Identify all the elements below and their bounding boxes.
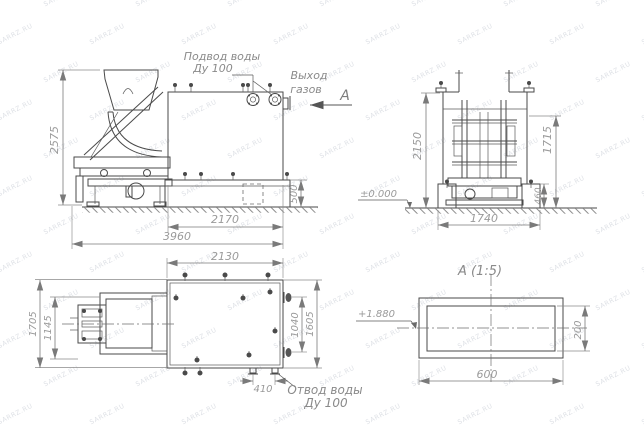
- dim-side-overall-height: 2150: [411, 132, 424, 160]
- ground-line: [82, 207, 318, 213]
- gas-outlet-nozzle: [283, 96, 290, 110]
- view-mark-letter: А: [339, 88, 350, 104]
- foundation-blocks: [438, 184, 540, 208]
- dim-front-overall-length: 3960: [163, 230, 191, 243]
- section-view: А (1:5) 600 200 +1.880: [356, 264, 590, 385]
- gas-outlet-label-1: Выход: [290, 69, 327, 82]
- water-drain-label: Отвод воды: [287, 383, 362, 397]
- front-view: 2575 500 2170 3960 Подвод воды Ду 100: [48, 50, 352, 249]
- plan-view: 2130 1705 1145 1040 1605: [28, 250, 363, 410]
- gas-outlet-label-2: газов: [290, 83, 322, 96]
- drawing-sheet: SARRZ.RUSARRZ.RUSARRZ.RUSARRZ.RUSARRZ.RU…: [0, 0, 644, 430]
- dim-side-foundation-width: 1740: [470, 212, 498, 225]
- dim-front-tank-length: 2170: [211, 213, 239, 226]
- machine-side: [436, 70, 534, 205]
- dim-plan-overall-width: 1705: [28, 311, 39, 336]
- drawing-canvas: 2575 500 2170 3960 Подвод воды Ду 100: [0, 0, 644, 430]
- dim-section-height: 200: [573, 320, 584, 339]
- ground-line-side: [405, 208, 597, 214]
- elevation-zero-label: ±0.000: [360, 189, 397, 200]
- drain-label: Отвод воды Ду 100: [277, 373, 363, 410]
- duct-elevation-mark: +1.880: [356, 309, 417, 329]
- dim-front-overall-height: 2575: [48, 126, 61, 154]
- water-supply-flange: [247, 94, 259, 106]
- dim-plan-nozzle-spacing: 1040: [290, 312, 301, 337]
- base-studs: [183, 172, 289, 180]
- dim-section-width: 600: [477, 368, 498, 381]
- water-supply-flange-2: [269, 94, 281, 106]
- zero-elevation-mark: ±0.000: [358, 189, 412, 208]
- front-dimensions: 2575 500 2170 3960: [48, 70, 307, 249]
- skip-plan: [62, 293, 175, 354]
- section-dimensions: 600 200: [419, 306, 590, 385]
- dim-plan-nozzle-span: 1605: [305, 311, 316, 336]
- dim-plan-drain-spacing: 410: [253, 384, 272, 395]
- elevation-duct-label: +1.880: [358, 309, 395, 320]
- dim-front-base-height: 500: [289, 184, 300, 203]
- plan-studs: [174, 273, 278, 376]
- dim-side-tank-height: 1715: [541, 126, 554, 154]
- dim-plan-skip-width: 1145: [43, 315, 54, 340]
- water-supply-dn-label: Ду 100: [192, 62, 233, 75]
- dim-side-base-height: 460: [534, 187, 544, 204]
- dim-plan-tank-length: 2130: [211, 250, 239, 263]
- tank-front: [165, 83, 290, 207]
- side-view: 2150 1715 460 1740 ±0.000: [358, 70, 597, 230]
- front-labels: Подвод воды Ду 100 Выход газов А: [184, 50, 352, 105]
- duct-section: [397, 274, 587, 382]
- section-title: А (1:5): [457, 264, 502, 279]
- drain-nozzles: [248, 368, 280, 374]
- skip-hoist: [74, 70, 172, 206]
- water-drain-dn-label: Ду 100: [303, 396, 348, 410]
